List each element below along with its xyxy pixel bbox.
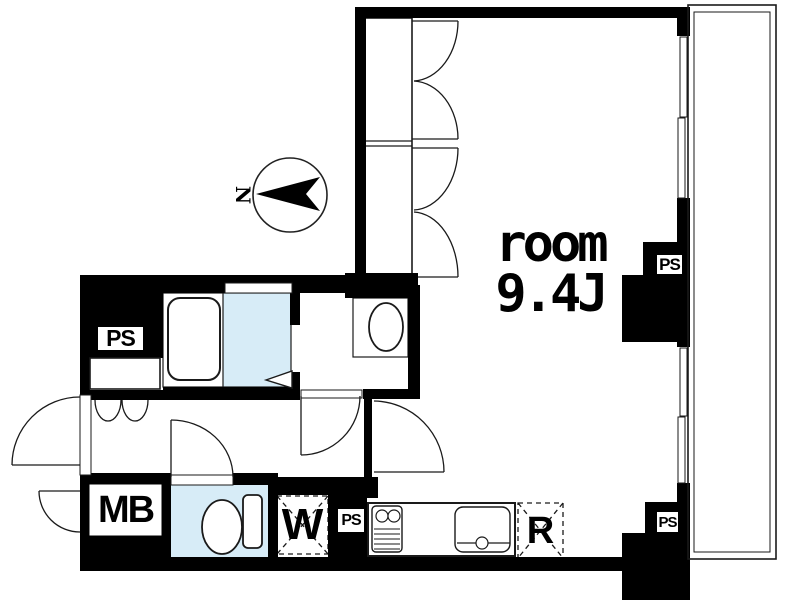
room-label: room xyxy=(440,219,660,269)
toilet-door-jamb xyxy=(171,475,233,485)
compass-north-label: N xyxy=(231,184,255,206)
washroom-door xyxy=(301,396,360,455)
compass-needle xyxy=(256,177,320,211)
pipe-space-label-bottom-right: PS xyxy=(657,512,678,532)
bathroom-floor xyxy=(223,293,291,387)
stove-burner-left xyxy=(376,510,388,522)
washing-machine-label: W xyxy=(277,496,328,554)
toilet-bowl xyxy=(202,500,242,554)
toilet-tank xyxy=(243,495,262,548)
meter-box-label: MB xyxy=(88,483,163,537)
washbasin-bowl xyxy=(369,303,403,351)
entrance-door xyxy=(12,397,80,465)
room-size-label: 9.4J xyxy=(440,269,660,319)
compass xyxy=(253,158,327,232)
meter-box-door xyxy=(39,491,80,532)
stove-burner-right xyxy=(388,510,400,522)
washroom-door-jamb xyxy=(301,390,362,398)
storage-box xyxy=(90,358,160,389)
shoe-cabinet-doors xyxy=(95,400,148,421)
closet-box xyxy=(365,18,412,277)
window-1-sash-lower xyxy=(678,118,685,198)
window-2-sash-lower xyxy=(678,417,685,483)
balcony xyxy=(688,5,776,559)
floor-plan: room 9.4J PS PS PS PS MB W R N xyxy=(0,0,800,611)
balcony-inner xyxy=(694,12,770,552)
bathtub xyxy=(168,298,220,380)
pipe-space-label-bottom-middle: PS xyxy=(338,509,364,532)
pipe-space-label-left: PS xyxy=(98,327,143,350)
entrance-door-jamb xyxy=(80,395,91,475)
window-2-sash-upper xyxy=(680,348,687,416)
window-1-sash-upper xyxy=(680,37,687,117)
pipe-space-label-top-right: PS xyxy=(657,255,682,274)
toilet-door xyxy=(171,420,233,477)
main-room-door xyxy=(374,401,444,472)
balcony-outer xyxy=(688,5,776,559)
bath-window xyxy=(225,283,292,293)
refrigerator-label: R xyxy=(518,503,563,558)
sink-drain xyxy=(476,537,488,549)
